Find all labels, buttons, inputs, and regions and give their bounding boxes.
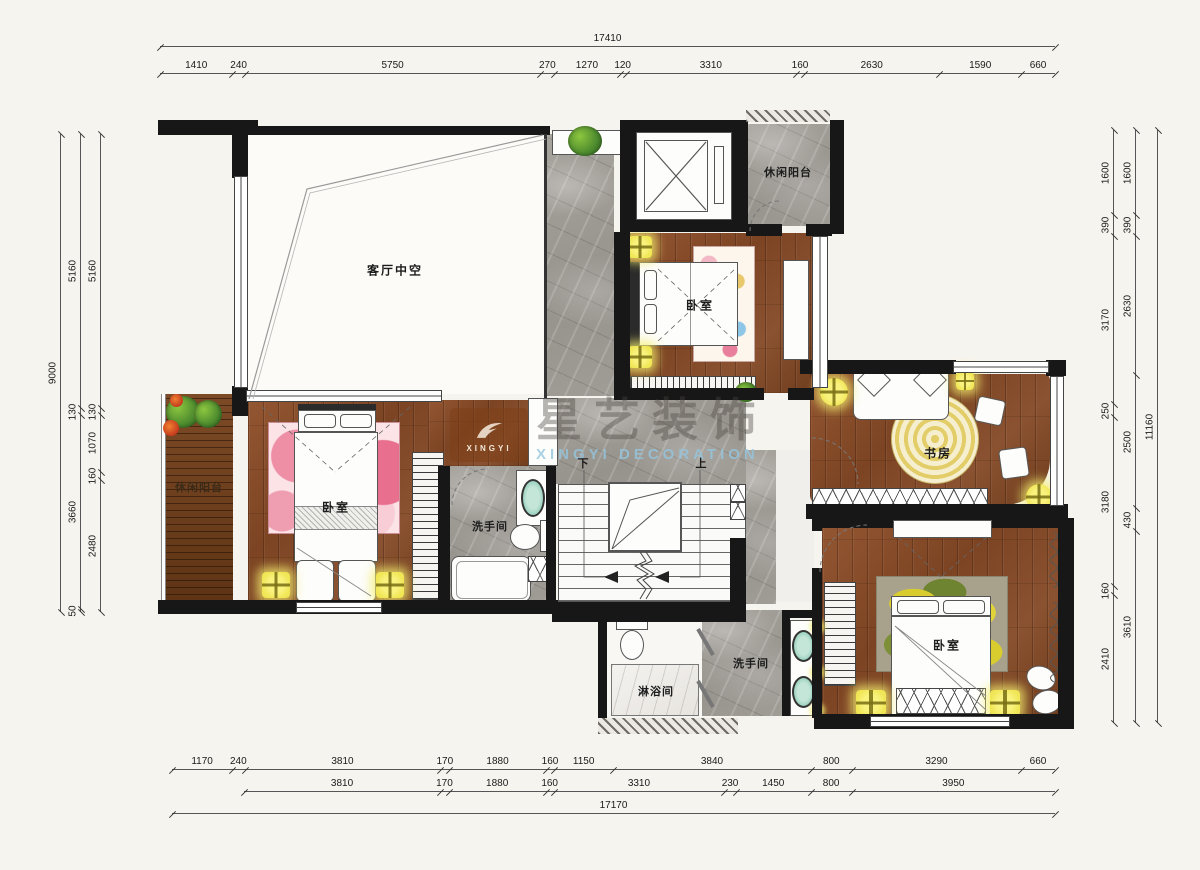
shaft-xbox-2 xyxy=(730,502,746,520)
watermark-brand-cn: 星艺装饰 xyxy=(536,398,956,444)
room-label-living-void: 客厅中空 xyxy=(367,262,423,279)
bed-left xyxy=(294,432,378,562)
bedroom-left-top-window xyxy=(246,390,442,402)
dim-left-total: 9000 xyxy=(60,134,61,612)
hall-gap-floor xyxy=(776,450,814,602)
wall-balcony-bedroom-a xyxy=(746,224,782,236)
room-label-study: 书房 xyxy=(924,445,952,462)
ceiling-light xyxy=(628,236,652,258)
wall-vanity-top xyxy=(782,610,818,618)
wall-bedroom-bottom-left-b xyxy=(812,568,822,718)
room-label-bedroom-left: 卧室 xyxy=(322,499,350,516)
toilet-bowl xyxy=(510,524,540,550)
floorplan-sheet: 客厅中空 休闲阳台 卧室 书房 休闲阳台 卧室 洗手间 淋浴间 洗手间 卧室 下… xyxy=(0,0,1200,870)
wall-bedroom-bottom-left-a xyxy=(812,517,822,531)
pillow xyxy=(340,414,372,428)
pillow xyxy=(943,600,985,614)
room-label-shower: 淋浴间 xyxy=(638,683,674,699)
watermark-text: 星艺装饰 XINGYI DECORATION xyxy=(536,398,956,463)
bed-bench xyxy=(896,688,986,714)
study-top-window xyxy=(953,361,1049,373)
ceiling-light xyxy=(376,572,404,598)
study-right-window xyxy=(1050,376,1064,506)
pillow xyxy=(644,270,657,300)
desk-chair xyxy=(998,446,1030,480)
balcony-flowers xyxy=(170,394,183,407)
pillow xyxy=(897,600,939,614)
wall-vanity-left xyxy=(782,618,790,716)
stairs-up-label: 上 xyxy=(696,455,707,471)
wall-top xyxy=(158,126,550,135)
planter-plant xyxy=(568,126,602,156)
room-label-bedroom-bottom: 卧室 xyxy=(933,637,961,654)
wall-corridor-bedroom xyxy=(614,232,630,392)
void-corridor-divider xyxy=(544,134,547,398)
shaft-xbox-1 xyxy=(730,484,746,502)
dim-top-total: 17410 xyxy=(160,46,1055,47)
wardrobe-bottom-bedroom xyxy=(824,582,856,686)
hatch-bottom xyxy=(598,718,738,734)
elevator-door-slot xyxy=(714,146,724,204)
dim-bottom-total: 17170 xyxy=(172,813,1055,814)
armchair xyxy=(296,560,334,602)
wall-balcony-top-right xyxy=(830,120,844,234)
wall-shower-left xyxy=(598,622,607,718)
wall-bath-right xyxy=(546,466,556,606)
room-label-balcony-top: 休闲阳台 xyxy=(764,164,812,180)
bedroom-left-bottom-window xyxy=(296,602,382,613)
wall-hall-right xyxy=(730,538,746,604)
dresser-top-bedroom xyxy=(783,260,809,360)
watermark-logo: XINGYI xyxy=(450,408,528,462)
stairs-down-label: 下 xyxy=(578,455,589,471)
dim-left-chain-a: 5160130366050 xyxy=(80,134,81,612)
dim-bottom-row1: 117024038101701880160115038408003290660 xyxy=(172,769,1055,770)
ceiling-light xyxy=(956,372,974,390)
wall-study-corner xyxy=(1046,360,1066,376)
pillow xyxy=(644,304,657,334)
floor-plan: 客厅中空 休闲阳台 卧室 书房 休闲阳台 卧室 洗手间 淋浴间 洗手间 卧室 下… xyxy=(0,0,1200,870)
hatch-balcony-top xyxy=(746,110,830,122)
balcony-plant xyxy=(194,400,222,428)
room-label-bedroom-top: 卧室 xyxy=(686,297,714,314)
wall-balcony-bedroom-b xyxy=(806,224,832,236)
wall-bath-bottom xyxy=(438,600,558,614)
room-label-bathroom-bottom: 洗手间 xyxy=(733,655,769,671)
wall-bath-left xyxy=(438,466,450,606)
ceiling-light xyxy=(990,690,1020,716)
dim-top-chain: 141024057502701270120331016026301590660 xyxy=(160,73,1055,74)
desk-chair xyxy=(974,395,1007,426)
ceiling-light xyxy=(628,346,652,368)
wall-right xyxy=(1058,518,1074,728)
bed-head-niche xyxy=(893,520,992,538)
wash-basin xyxy=(521,479,545,517)
hall-strip-floor xyxy=(746,450,776,604)
bedroom-top-right-window xyxy=(812,236,828,388)
void-left-window xyxy=(234,176,248,388)
dim-bottom-row2: 38101701880160331023014508003950 xyxy=(244,791,1055,792)
corridor-floor xyxy=(547,134,614,396)
dim-right-total: 11160 xyxy=(1157,130,1158,723)
armchair xyxy=(338,560,376,602)
toilet-bowl xyxy=(620,630,644,660)
room-label-balcony-left: 休闲阳台 xyxy=(175,479,223,495)
pillar-left-upper xyxy=(232,120,248,178)
stairs-void-box xyxy=(608,482,682,552)
bedroom-bottom-window xyxy=(870,716,1010,727)
balcony-flowers xyxy=(163,420,179,436)
dim-left-chain-b: 516013010701602480 xyxy=(100,134,101,612)
ceiling-light xyxy=(262,572,290,598)
elevator-cab-inner xyxy=(644,140,708,212)
bathtub-inner xyxy=(456,561,528,599)
pillow xyxy=(304,414,336,428)
ceiling-light xyxy=(856,690,886,716)
bed-top-headboard xyxy=(630,262,639,346)
phoenix-logo-icon xyxy=(470,418,508,444)
dim-right-inner: 1600390317025031801602410 xyxy=(1113,130,1114,723)
room-label-bathroom-left: 洗手间 xyxy=(472,518,508,534)
dim-right-mid: 1600390263025004303610 xyxy=(1135,130,1136,723)
wall-stairs-bottom xyxy=(552,602,746,622)
watermark-brand-en: XINGYI DECORATION xyxy=(536,446,956,463)
watermark-logo-text: XINGYI xyxy=(466,444,511,453)
